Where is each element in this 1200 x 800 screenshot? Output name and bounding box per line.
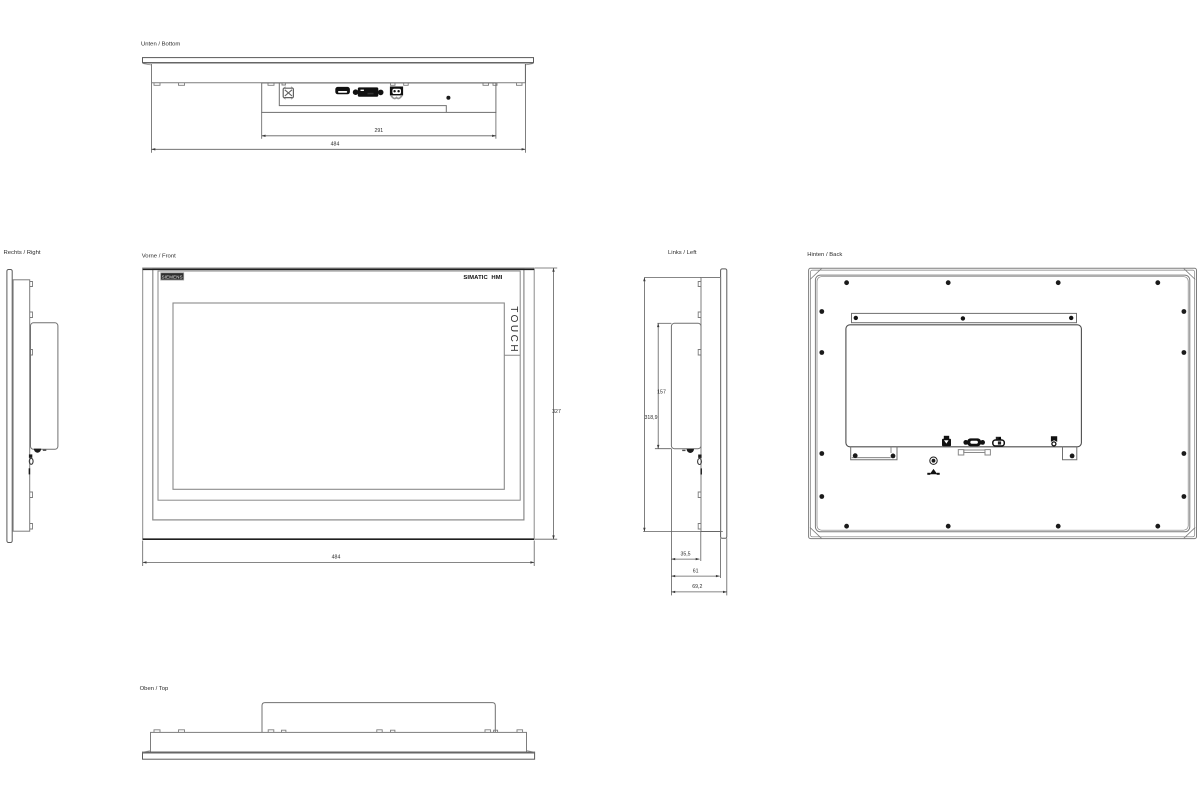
svg-text:SIMATIC HMI: SIMATIC HMI bbox=[463, 275, 502, 281]
svg-text:484: 484 bbox=[331, 142, 340, 148]
svg-text:61: 61 bbox=[693, 568, 699, 574]
svg-text:Hinten / Back: Hinten / Back bbox=[807, 252, 842, 258]
svg-text:69,2: 69,2 bbox=[692, 584, 702, 590]
svg-text:327: 327 bbox=[552, 409, 561, 415]
svg-text:TOUCH: TOUCH bbox=[508, 306, 519, 354]
svg-text:157: 157 bbox=[657, 390, 666, 396]
svg-text:SIEMENS: SIEMENS bbox=[162, 275, 183, 280]
svg-text:484: 484 bbox=[332, 555, 341, 561]
svg-text:291: 291 bbox=[374, 128, 383, 134]
svg-text:Vorne / Front: Vorne / Front bbox=[142, 253, 176, 259]
svg-text:Unten / Bottom: Unten / Bottom bbox=[141, 42, 180, 48]
svg-text:Links / Left: Links / Left bbox=[668, 250, 697, 256]
svg-text:318,9: 318,9 bbox=[645, 415, 658, 421]
svg-text:Rechts / Right: Rechts / Right bbox=[4, 250, 41, 256]
svg-text:35,5: 35,5 bbox=[680, 551, 690, 557]
svg-text:Oben / Top: Oben / Top bbox=[140, 686, 169, 692]
